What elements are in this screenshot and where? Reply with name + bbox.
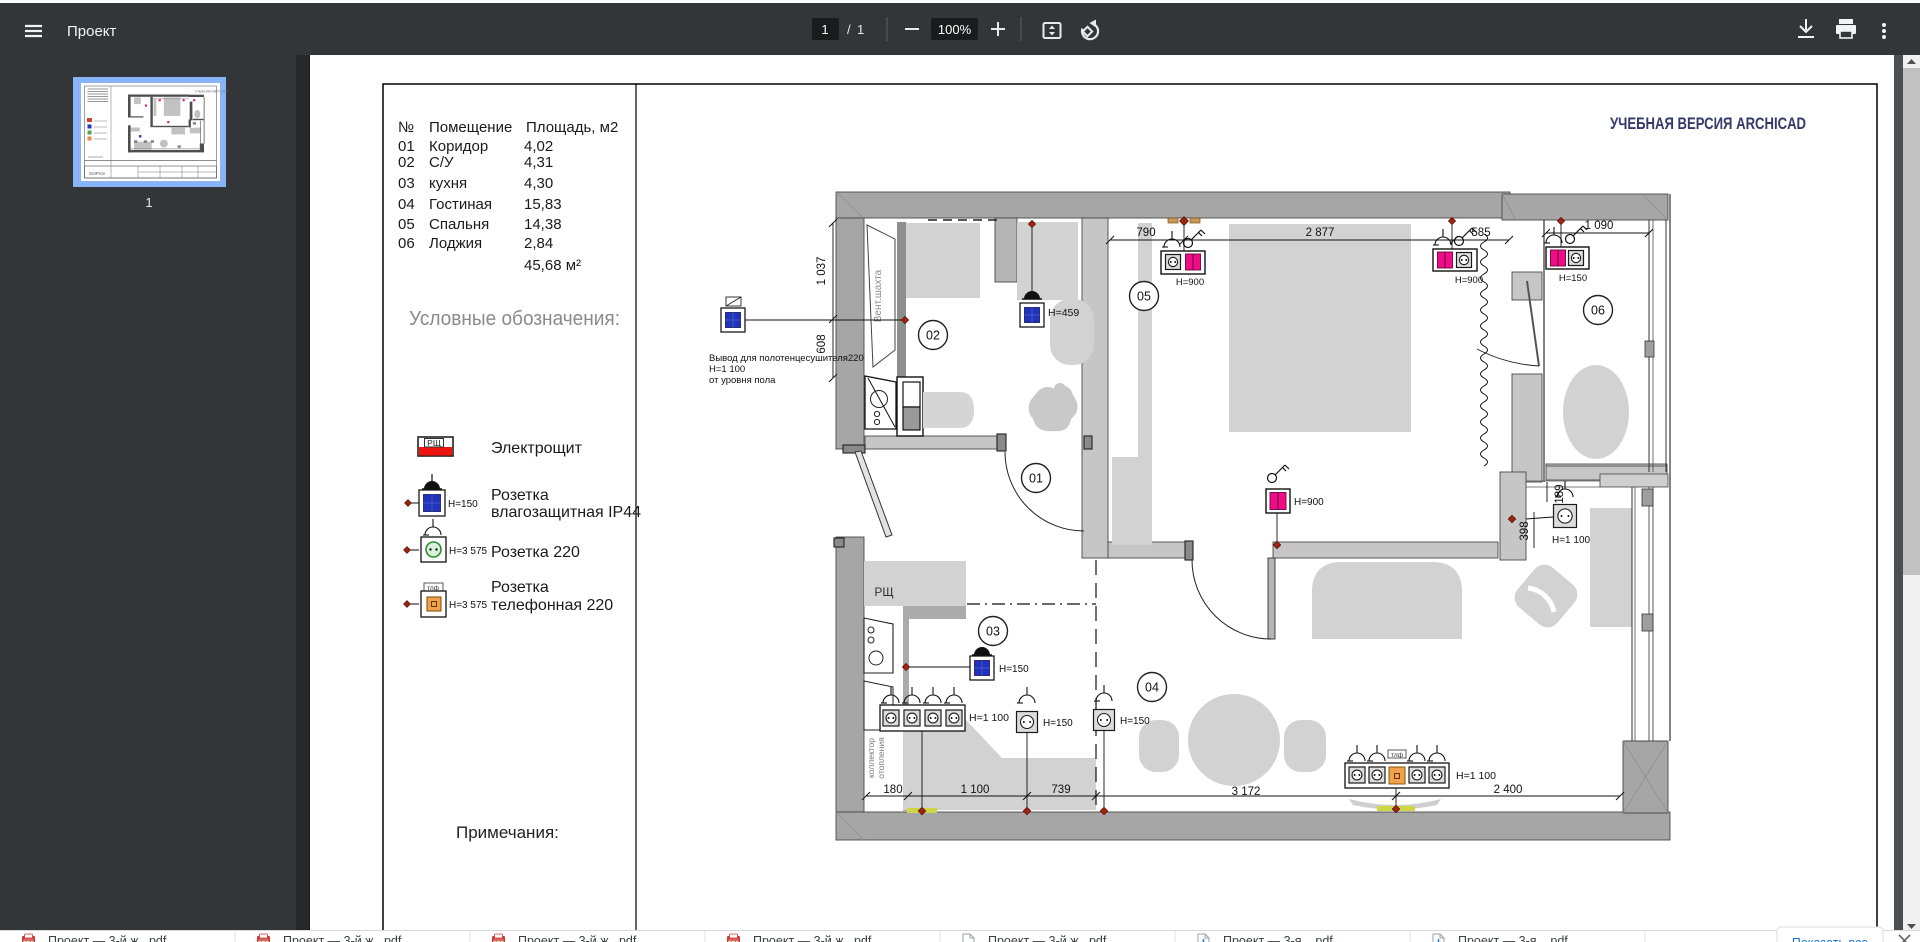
svg-text:H=1 100: H=1 100 [1456, 770, 1496, 782]
svg-text:03: 03 [986, 625, 1000, 639]
svg-text:кухня: кухня [429, 175, 467, 192]
svg-text:Лоджия: Лоджия [429, 235, 482, 252]
svg-text:Розетка: Розетка [491, 579, 549, 596]
svg-text:01: 01 [398, 138, 415, 155]
svg-text:1 090: 1 090 [1585, 220, 1614, 232]
svg-text:100%: 100% [938, 22, 972, 37]
svg-text:2,84: 2,84 [524, 235, 553, 252]
svg-text:H=900: H=900 [1294, 497, 1324, 508]
svg-text:H=900: H=900 [1455, 275, 1483, 286]
svg-text:от уровня пола: от уровня пола [709, 375, 776, 386]
svg-text:790: 790 [1136, 227, 1155, 239]
svg-text:Помещение: Помещение [429, 119, 512, 136]
svg-text:Условные обозначения:: Условные обозначения: [409, 307, 620, 330]
svg-text:Коридор: Коридор [429, 138, 488, 155]
svg-text:Электрощит: Электрощит [491, 440, 583, 457]
svg-text:H=150: H=150 [448, 499, 478, 510]
svg-text:коллектор: коллектор [866, 738, 876, 778]
svg-text:С/У: С/У [429, 154, 454, 171]
svg-text:1: 1 [145, 195, 152, 210]
svg-text:06: 06 [398, 235, 415, 252]
svg-text:4,31: 4,31 [524, 154, 553, 171]
svg-text:1 037: 1 037 [816, 257, 828, 286]
svg-text:14,38: 14,38 [524, 216, 562, 233]
svg-text:РЩ: РЩ [427, 438, 441, 448]
svg-text:1: 1 [821, 22, 828, 37]
svg-text:Розетка 220: Розетка 220 [491, 544, 580, 561]
svg-text:H=3 575: H=3 575 [449, 546, 488, 557]
svg-text:Примечания:: Примечания: [456, 823, 559, 842]
svg-text:2 400: 2 400 [1494, 784, 1523, 796]
svg-text:739: 739 [1051, 784, 1070, 796]
svg-text:4,02: 4,02 [524, 138, 553, 155]
svg-text:05: 05 [398, 216, 415, 233]
svg-text:телефонная 220: телефонная 220 [491, 597, 613, 614]
svg-text:45,68 м²: 45,68 м² [524, 257, 581, 274]
svg-text:1 100: 1 100 [961, 784, 990, 796]
svg-text:02: 02 [398, 154, 415, 171]
svg-text:влагозащитная IP44: влагозащитная IP44 [491, 504, 641, 521]
svg-text:01: 01 [1029, 472, 1043, 486]
svg-text:УЧЕБНАЯ ВЕРСИЯ ARCHICAD: УЧЕБНАЯ ВЕРСИЯ ARCHICAD [1610, 114, 1806, 133]
svg-text:Спальня: Спальня [429, 216, 489, 233]
svg-text:3 172: 3 172 [1232, 786, 1261, 798]
svg-text:тлф: тлф [1391, 752, 1404, 759]
svg-text:03: 03 [398, 175, 415, 192]
svg-text:4,30: 4,30 [524, 175, 553, 192]
svg-text:Площадь, м2: Площадь, м2 [526, 119, 618, 136]
svg-text:Вывод для полотенцесушителя220: Вывод для полотенцесушителя220 [709, 353, 864, 364]
svg-text:585: 585 [1471, 227, 1490, 239]
svg-text:398: 398 [1519, 521, 1531, 540]
svg-text:H=3 575: H=3 575 [449, 600, 488, 611]
svg-text:РЩ: РЩ [874, 585, 893, 599]
svg-text:H=150: H=150 [1043, 718, 1073, 729]
svg-text:H=150: H=150 [1120, 716, 1150, 727]
svg-text:04: 04 [1145, 681, 1159, 695]
svg-text:H=1 100: H=1 100 [969, 712, 1009, 724]
svg-text:1: 1 [857, 22, 864, 37]
svg-text:№: № [398, 119, 414, 136]
svg-text:180: 180 [883, 784, 902, 796]
svg-text:/: / [847, 22, 851, 37]
svg-text:H=1 100: H=1 100 [1552, 535, 1591, 546]
svg-text:УЧЕБНАЯ ВЕРСИЯ: УЧЕБНАЯ ВЕРСИЯ [195, 90, 228, 94]
svg-text:06: 06 [1591, 304, 1605, 318]
svg-text:H=1 100: H=1 100 [709, 364, 745, 375]
svg-text:2 877: 2 877 [1306, 227, 1335, 239]
svg-text:Проект: Проект [67, 23, 117, 40]
svg-text:SntProv: SntProv [89, 171, 106, 176]
svg-text:отопления: отопления [876, 737, 886, 779]
svg-text:H=900: H=900 [1176, 277, 1204, 288]
svg-text:02: 02 [926, 329, 940, 343]
svg-text:05: 05 [1137, 290, 1151, 304]
svg-text:15,83: 15,83 [524, 196, 562, 213]
svg-text:H=150: H=150 [1559, 273, 1587, 284]
svg-text:Розетка: Розетка [491, 487, 549, 504]
svg-text:H=150: H=150 [999, 664, 1029, 675]
svg-text:Гостиная: Гостиная [429, 196, 492, 213]
svg-text:Вент.шахта: Вент.шахта [873, 269, 884, 322]
svg-text:04: 04 [398, 196, 415, 213]
svg-text:189: 189 [1554, 484, 1566, 503]
svg-text:H=459: H=459 [1048, 307, 1079, 319]
svg-text:608: 608 [816, 334, 828, 353]
